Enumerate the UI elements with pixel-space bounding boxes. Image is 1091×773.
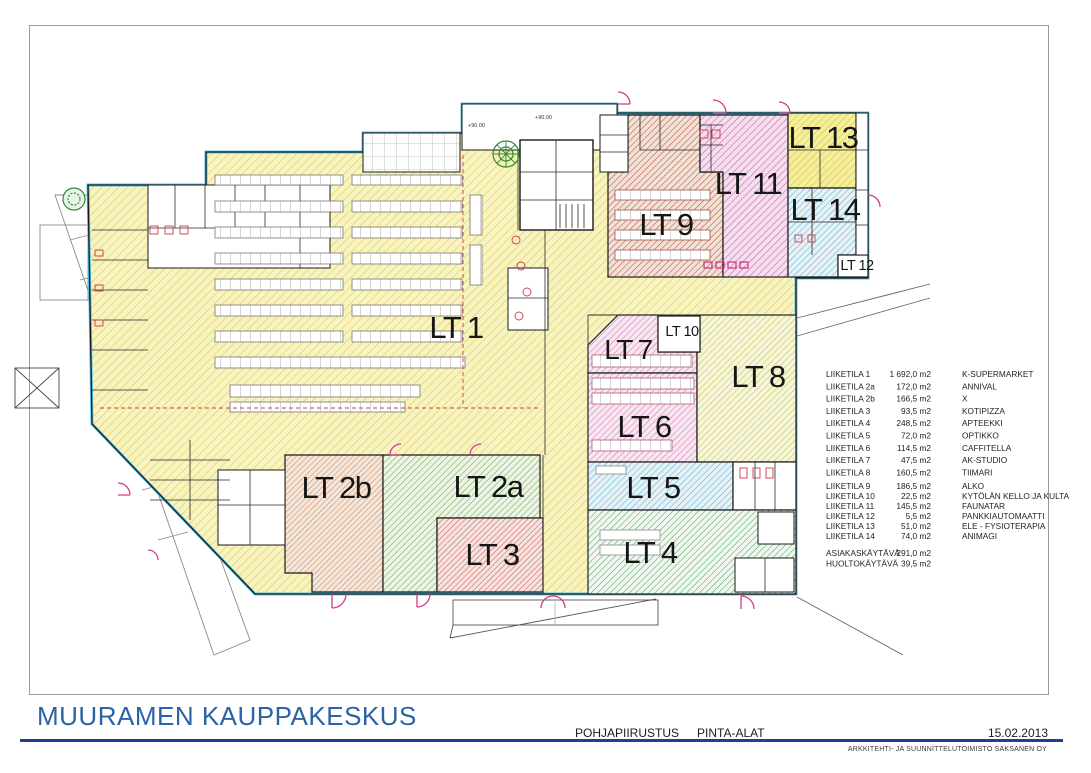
- legend-tenant: X: [962, 394, 968, 404]
- floor-plan-svg: LT 1 LT 2a LT 2b LT 3 LT 4 LT 5 LT 6 LT …: [0, 0, 1091, 773]
- legend-room-name: LIIKETILA 14: [826, 531, 875, 541]
- legend-tenant: KOTIPIZZA: [962, 406, 1005, 416]
- site-diagonal: [797, 597, 903, 655]
- elevation-mark: +90.00: [535, 115, 552, 121]
- legend-tenant: CAFFITELLA: [962, 443, 1012, 453]
- tree-icon: [63, 188, 85, 210]
- stair-block: [520, 140, 593, 230]
- legend-tenant: ANNIVAL: [962, 381, 997, 391]
- legend-total-name: ASIAKASKÄYTÄVÄ: [826, 548, 900, 558]
- lt9-service-rooms: [600, 115, 628, 172]
- legend-room-name: LIIKETILA 2b: [826, 394, 875, 404]
- legend-room-area: 186,5 m2: [896, 481, 931, 491]
- legend-room-area: 248,5 m2: [896, 418, 931, 428]
- legend-room-area: 51,0 m2: [901, 521, 931, 531]
- legend-room-name: LIIKETILA 9: [826, 481, 871, 491]
- legend-room-name: LIIKETILA 4: [826, 418, 871, 428]
- legend-room-name: LIIKETILA 2a: [826, 381, 875, 391]
- project-title: MUURAMEN KAUPPAKESKUS: [37, 701, 417, 732]
- room-label-lt-10: LT 10: [665, 324, 699, 340]
- legend-room-area: 22,5 m2: [901, 491, 931, 501]
- legend-tenant: TIIMARI: [962, 467, 992, 477]
- right-strip-rooms: [856, 113, 868, 255]
- legend-tenant: KYTÖLÄN KELLO JA KULTA: [962, 491, 1070, 501]
- room-label-lt-1: LT 1: [429, 310, 482, 345]
- elevation-mark: +90.00: [468, 123, 485, 129]
- service-block: [508, 268, 548, 330]
- legend-tenant: ELE - FYSIOTERAPIA: [962, 521, 1046, 531]
- legend-tenant: FAUNATAR: [962, 501, 1005, 511]
- left-rooms-block: [218, 470, 285, 545]
- ramp-diagonal: [450, 599, 656, 638]
- legend-room-area: 72,0 m2: [901, 431, 931, 441]
- legend-room-name: LIIKETILA 5: [826, 431, 871, 441]
- legend-room-name: LIIKETILA 13: [826, 521, 875, 531]
- legend-total-name: HUOLTOKÄYTÄVÄ: [826, 559, 899, 569]
- legend-tenant: OPTIKKO: [962, 431, 999, 441]
- legend-tenant: ALKO: [962, 481, 985, 491]
- legend-tenant: APTEEKKI: [962, 418, 1003, 428]
- room-label-lt-7: LT 7: [604, 334, 652, 365]
- legend-room-area: 145,5 m2: [896, 501, 931, 511]
- legend-room-area: 47,5 m2: [901, 455, 931, 465]
- room-label-lt-6: LT 6: [617, 409, 670, 444]
- room-label-lt-14: LT 14: [791, 192, 861, 227]
- leader-line-1: [797, 284, 930, 318]
- legend-room-name: LIIKETILA 7: [826, 455, 871, 465]
- tech-roof-block: [363, 133, 460, 172]
- legend-room-area: 74,0 m2: [901, 531, 931, 541]
- legend-room-area: 114,5 m2: [897, 443, 931, 453]
- legend-room-area: 5,5 m2: [906, 511, 932, 521]
- canopy: [453, 600, 658, 625]
- room-label-lt-8: LT 8: [731, 359, 784, 394]
- legend-room-area: 166,5 m2: [896, 394, 931, 404]
- room-label-lt-11: LT 11: [715, 166, 782, 201]
- legend-room-area: 93,5 m2: [901, 406, 931, 416]
- drawing-type: POHJAPIIRUSTUS: [575, 726, 679, 740]
- drawing-subtype: PINTA-ALAT: [697, 726, 765, 740]
- legend-tenant: AK-STUDIO: [962, 455, 1008, 465]
- room-label-lt-5: LT 5: [626, 470, 679, 505]
- legend-tenant: PANKKIAUTOMAATTI: [962, 511, 1045, 521]
- room-label-lt-12: LT 12: [840, 258, 874, 274]
- leader-line-2: [797, 298, 930, 336]
- legend-room-name: LIIKETILA 12: [826, 511, 875, 521]
- title-rule: [20, 739, 1063, 742]
- legend-room-name: LIIKETILA 11: [826, 501, 875, 511]
- room-label-lt-4: LT 4: [623, 535, 677, 570]
- legend-total-area: 291,0 m2: [896, 548, 931, 558]
- room-label-lt-2a: LT 2a: [454, 469, 525, 504]
- service-rooms-lt5: [733, 462, 796, 510]
- legend-room-area: 160,5 m2: [896, 467, 931, 477]
- spiral-stair-icon: [493, 141, 519, 167]
- legend-total-area: 39,5 m2: [901, 559, 931, 569]
- room-label-lt-3: LT 3: [465, 537, 518, 572]
- lt4-room-1: [758, 512, 794, 544]
- drawing-sheet: LT 1 LT 2a LT 2b LT 3 LT 4 LT 5 LT 6 LT …: [0, 0, 1091, 773]
- drawing-caption: POHJAPIIRUSTUSPINTA-ALAT: [575, 726, 765, 740]
- legend-tenant: K-SUPERMARKET: [962, 369, 1033, 379]
- legend-room-name: LIIKETILA 6: [826, 443, 871, 453]
- legend-room-name: LIIKETILA 10: [826, 491, 875, 501]
- legend-tenant: ANIMAGI: [962, 531, 997, 541]
- legend-room-name: LIIKETILA 3: [826, 406, 871, 416]
- legend-room-area: 172,0 m2: [896, 381, 931, 391]
- lt4-room-2: [735, 558, 794, 592]
- legend-room-name: LIIKETILA 1: [826, 369, 871, 379]
- architect-name: ARKKITEHTI- JA SUUNNITTELUTOIMISTO SAKSA…: [848, 746, 1047, 753]
- drawing-date: 15.02.2013: [988, 726, 1048, 740]
- room-label-lt-2b: LT 2b: [302, 470, 371, 505]
- legend-room-name: LIIKETILA 8: [826, 467, 871, 477]
- legend: LIIKETILA 1 1 692,0 m2 K-SUPERMARKET LII…: [826, 369, 1070, 569]
- room-label-lt-9: LT 9: [639, 207, 692, 242]
- room-label-lt-13: LT 13: [789, 120, 858, 155]
- legend-room-area: 1 692,0 m2: [889, 369, 931, 379]
